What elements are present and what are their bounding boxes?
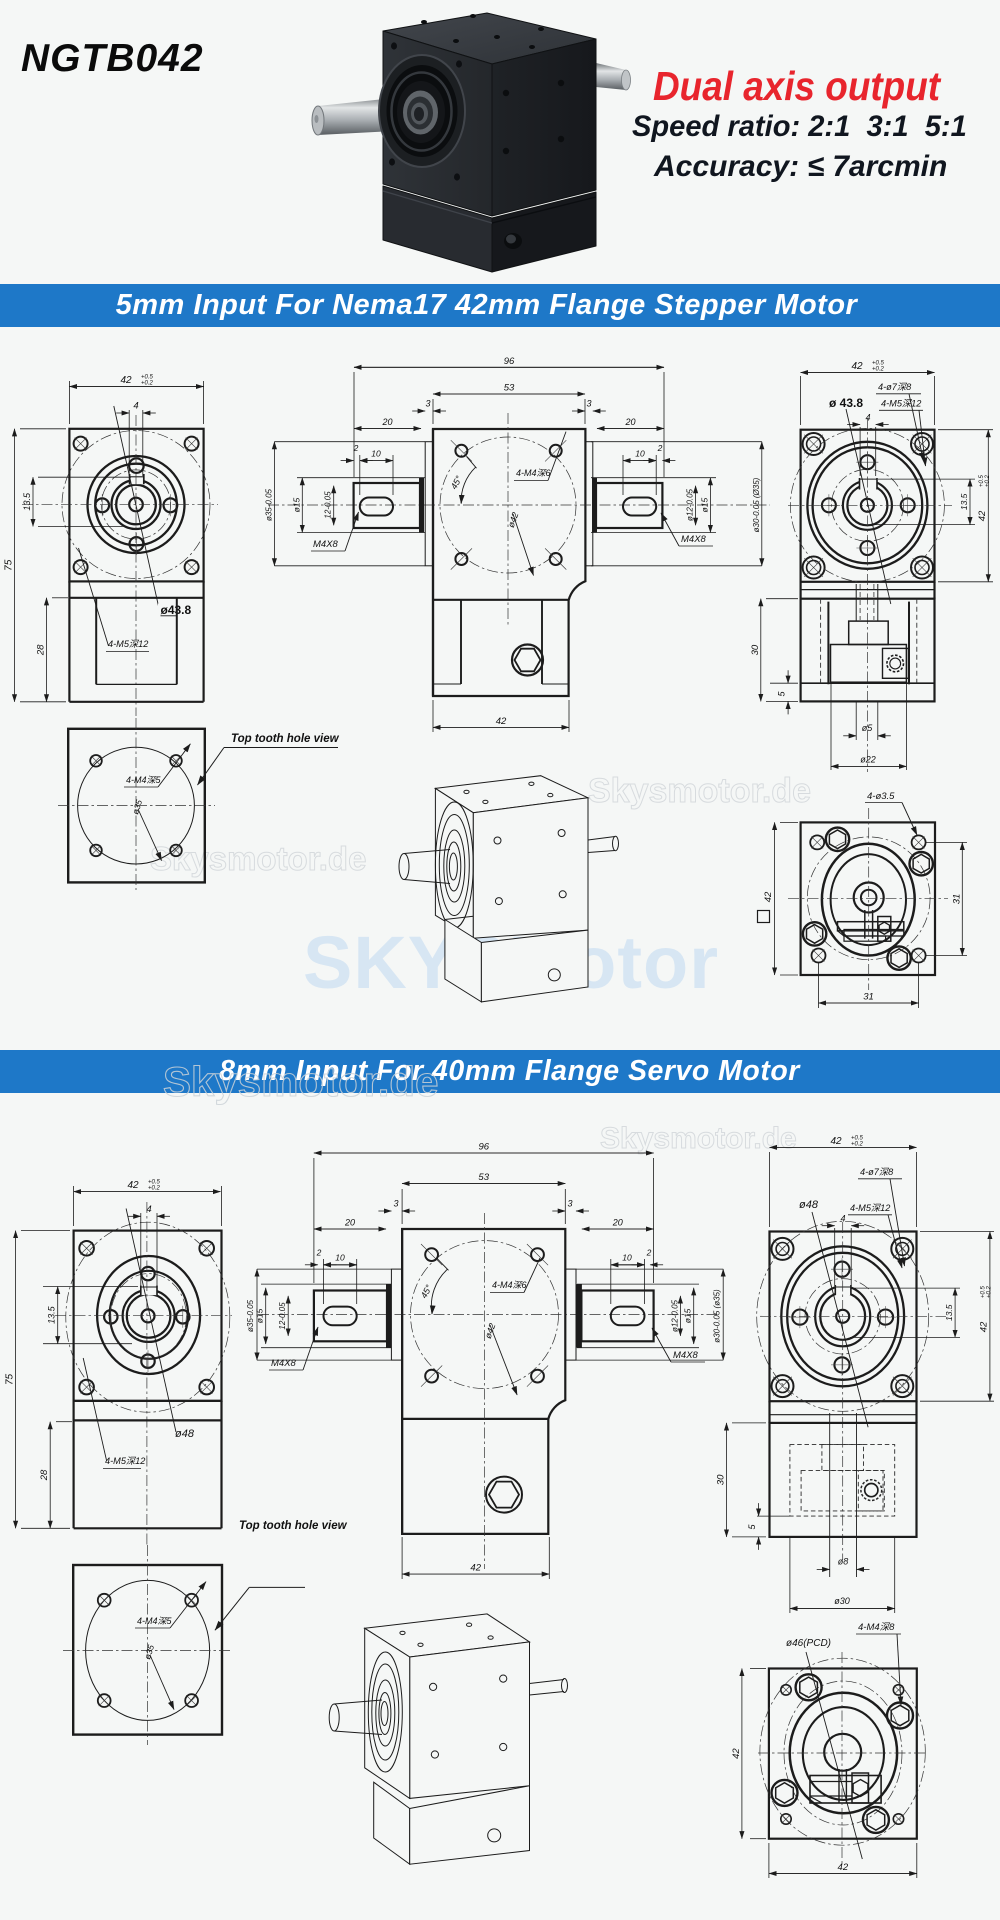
svg-text:31: 31	[951, 894, 962, 905]
svg-text:3: 3	[586, 399, 591, 409]
svg-text:4-M4深5: 4-M4深5	[137, 1616, 173, 1626]
svg-text:12-0.05: 12-0.05	[278, 1302, 287, 1330]
svg-text:Skysmotor.de: Skysmotor.de	[150, 840, 366, 877]
svg-text:5: 5	[747, 1524, 757, 1530]
svg-text:4-M5深12: 4-M5深12	[108, 639, 148, 649]
svg-text:ø30-0.05 (Ø35): ø30-0.05 (Ø35)	[752, 477, 761, 532]
svg-text:Top tooth hole view: Top tooth hole view	[231, 733, 340, 745]
svg-text:10: 10	[371, 449, 381, 459]
svg-text:Skysmotor.de: Skysmotor.de	[163, 1058, 438, 1105]
svg-text:30: 30	[716, 1474, 727, 1485]
svg-text:4: 4	[146, 1204, 151, 1215]
svg-text:4-M4深8: 4-M4深8	[858, 1622, 895, 1633]
svg-text:ø48: ø48	[799, 1199, 819, 1211]
svg-text:2: 2	[657, 443, 663, 453]
svg-text:4-M4深6: 4-M4深6	[492, 1280, 527, 1290]
svg-text:ø46(PCD): ø46(PCD)	[786, 1638, 831, 1649]
svg-text:ø35: ø35	[142, 1643, 156, 1660]
svg-text:ø30-0.05 (ø35): ø30-0.05 (ø35)	[713, 1289, 722, 1343]
svg-text:42: 42	[731, 1748, 742, 1759]
svg-text:28: 28	[39, 1469, 50, 1481]
svg-text:42: 42	[830, 1136, 842, 1147]
svg-text:20: 20	[344, 1218, 355, 1228]
svg-text:42: 42	[978, 1321, 989, 1332]
svg-text:3: 3	[567, 1199, 572, 1209]
svg-text:4-M5深12: 4-M5深12	[105, 1456, 145, 1466]
svg-text:+0.2: +0.2	[987, 1285, 993, 1298]
svg-text:13.5: 13.5	[47, 1305, 57, 1324]
svg-text:12-0.05: 12-0.05	[324, 491, 333, 519]
svg-text:4-ø7深8: 4-ø7深8	[878, 382, 912, 392]
svg-text:4-M4深6: 4-M4深6	[516, 468, 551, 478]
svg-text:2: 2	[353, 443, 359, 453]
svg-text:42: 42	[470, 1563, 481, 1574]
svg-text:10: 10	[622, 1253, 632, 1263]
svg-text:ø48: ø48	[175, 1428, 195, 1440]
svg-text:45°: 45°	[449, 474, 464, 491]
svg-text:ø 43.8: ø 43.8	[829, 396, 863, 410]
svg-text:4-ø3.5: 4-ø3.5	[867, 791, 895, 802]
svg-text:ø35: ø35	[130, 798, 144, 815]
svg-text:28: 28	[36, 644, 47, 656]
svg-text:4: 4	[840, 1214, 845, 1224]
svg-text:42: 42	[127, 1180, 139, 1191]
svg-text:13.5: 13.5	[22, 492, 32, 511]
svg-text:42: 42	[838, 1862, 849, 1873]
svg-text:ø30: ø30	[834, 1596, 850, 1606]
svg-text:96: 96	[504, 356, 515, 367]
svg-text:2: 2	[646, 1248, 652, 1258]
svg-text:ø15: ø15	[255, 1308, 265, 1323]
svg-text:42: 42	[977, 510, 988, 521]
svg-text:20: 20	[612, 1218, 623, 1228]
svg-text:13.5: 13.5	[944, 1304, 954, 1321]
svg-text:42: 42	[763, 891, 774, 902]
svg-text:ø12-0.05: ø12-0.05	[670, 1299, 679, 1332]
svg-text:4-M5深12: 4-M5深12	[850, 1203, 890, 1213]
svg-text:96: 96	[478, 1142, 489, 1153]
svg-text:Skysmotor.de: Skysmotor.de	[588, 772, 811, 810]
svg-text:4-M5深12: 4-M5深12	[881, 399, 921, 409]
svg-text:5: 5	[777, 691, 787, 697]
svg-text:+0.2: +0.2	[872, 367, 885, 373]
svg-text:4-M4深5: 4-M4深5	[126, 775, 162, 785]
svg-text:ø35-0.05: ø35-0.05	[246, 1299, 255, 1332]
svg-text:ø15: ø15	[291, 498, 301, 513]
svg-text:31: 31	[863, 992, 874, 1003]
svg-text:+0.2: +0.2	[851, 1142, 864, 1148]
svg-text:Top tooth hole view: Top tooth hole view	[239, 1520, 348, 1532]
svg-text:4-ø7深8: 4-ø7深8	[860, 1167, 894, 1177]
svg-text:42: 42	[851, 361, 863, 372]
svg-text:M4X8: M4X8	[673, 1350, 699, 1361]
svg-text:3: 3	[393, 1199, 398, 1209]
svg-text:M4X8: M4X8	[271, 1358, 297, 1369]
svg-text:20: 20	[381, 417, 392, 427]
svg-text:Skysmotor.de: Skysmotor.de	[600, 1122, 797, 1155]
svg-text:+0.2: +0.2	[985, 474, 991, 487]
svg-text:75: 75	[5, 1373, 16, 1385]
svg-text:10: 10	[635, 449, 645, 459]
svg-text:42: 42	[120, 375, 132, 386]
svg-text:13.5: 13.5	[959, 493, 969, 510]
svg-text:4: 4	[133, 401, 138, 412]
svg-text:M4X8: M4X8	[313, 539, 339, 550]
svg-text:53: 53	[478, 1172, 489, 1183]
svg-text:ø12-0.05: ø12-0.05	[686, 488, 695, 521]
svg-text:+0.2: +0.2	[141, 381, 154, 387]
svg-text:4: 4	[865, 413, 870, 423]
svg-text:ø8: ø8	[838, 1557, 849, 1567]
svg-text:M4X8: M4X8	[681, 534, 707, 545]
svg-text:42: 42	[496, 716, 507, 727]
svg-text:+0.2: +0.2	[148, 1186, 161, 1192]
svg-text:ø5: ø5	[862, 723, 873, 733]
svg-text:ø22: ø22	[860, 755, 876, 765]
svg-text:ø15: ø15	[699, 498, 709, 513]
svg-text:20: 20	[624, 417, 635, 427]
svg-text:ø42: ø42	[483, 1322, 498, 1340]
svg-text:75: 75	[4, 559, 15, 571]
svg-text:30: 30	[750, 644, 761, 655]
svg-text:3: 3	[425, 399, 430, 409]
svg-text:53: 53	[504, 383, 515, 394]
svg-text:2: 2	[316, 1248, 322, 1258]
svg-text:ø35-0.05: ø35-0.05	[264, 488, 273, 521]
svg-text:10: 10	[335, 1253, 345, 1263]
svg-text:ø15: ø15	[683, 1308, 693, 1323]
